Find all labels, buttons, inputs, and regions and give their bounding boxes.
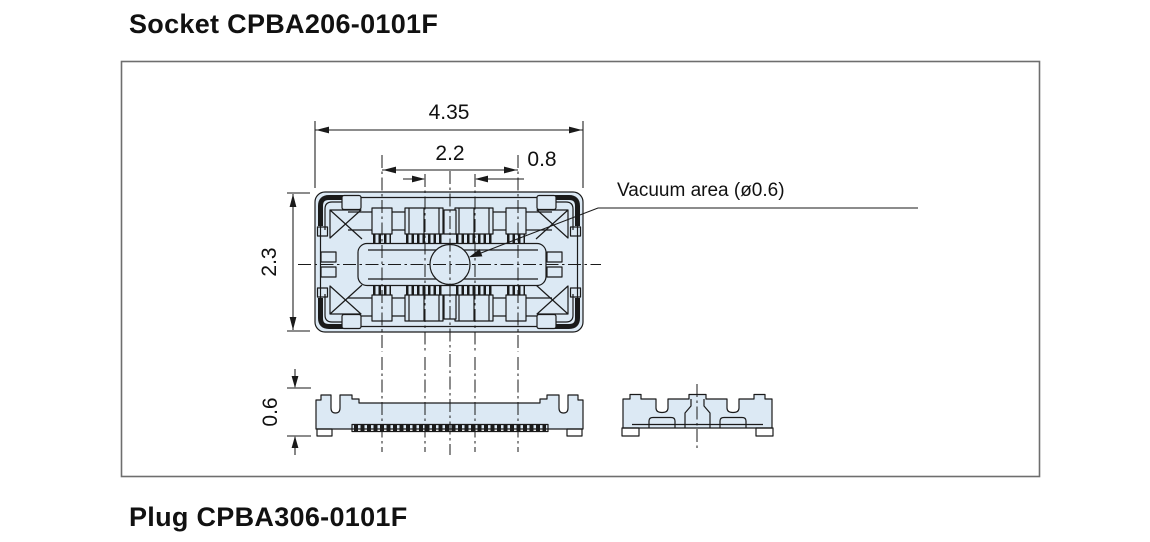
- socket-title: Socket CPBA206-0101F: [129, 9, 438, 40]
- plug-title: Plug CPBA306-0101F: [129, 502, 408, 533]
- mounted-height-label: 0.6: [259, 397, 282, 426]
- technical-drawing: 4.35 2.2 0.8 2.3 0.6 Vacuum area (ø0.6): [0, 0, 1150, 542]
- vacuum-area-label: Vacuum area (ø0.6): [617, 180, 785, 201]
- contact-span-label: 2.2: [435, 142, 464, 165]
- connector-top-view: [315, 192, 583, 332]
- body-depth-label: 2.3: [258, 247, 281, 276]
- end-offset-label: 0.8: [527, 148, 556, 171]
- overall-width-label: 4.35: [429, 101, 470, 124]
